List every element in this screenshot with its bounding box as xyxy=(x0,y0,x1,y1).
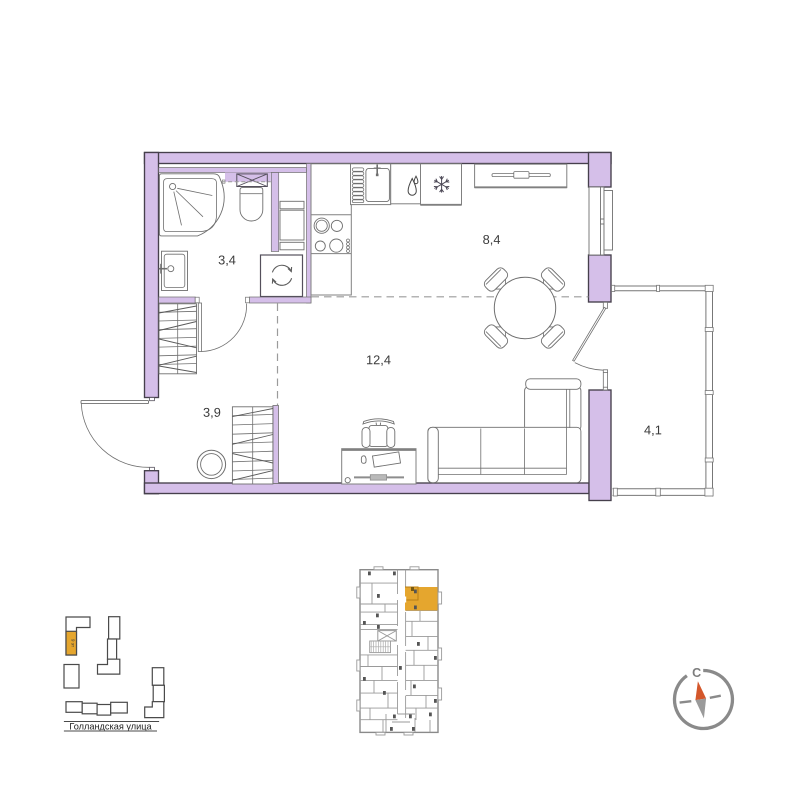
svg-text:12,4: 12,4 xyxy=(366,352,391,367)
svg-text:8,4: 8,4 xyxy=(483,232,501,247)
svg-text:С: С xyxy=(692,666,701,680)
svg-text:3,4: 3,4 xyxy=(218,252,236,267)
svg-text:9 эт: 9 эт xyxy=(71,639,76,648)
svg-text:3,9: 3,9 xyxy=(203,405,221,420)
svg-text:4,1: 4,1 xyxy=(644,422,662,437)
svg-text:Голландская улица: Голландская улица xyxy=(69,721,152,731)
